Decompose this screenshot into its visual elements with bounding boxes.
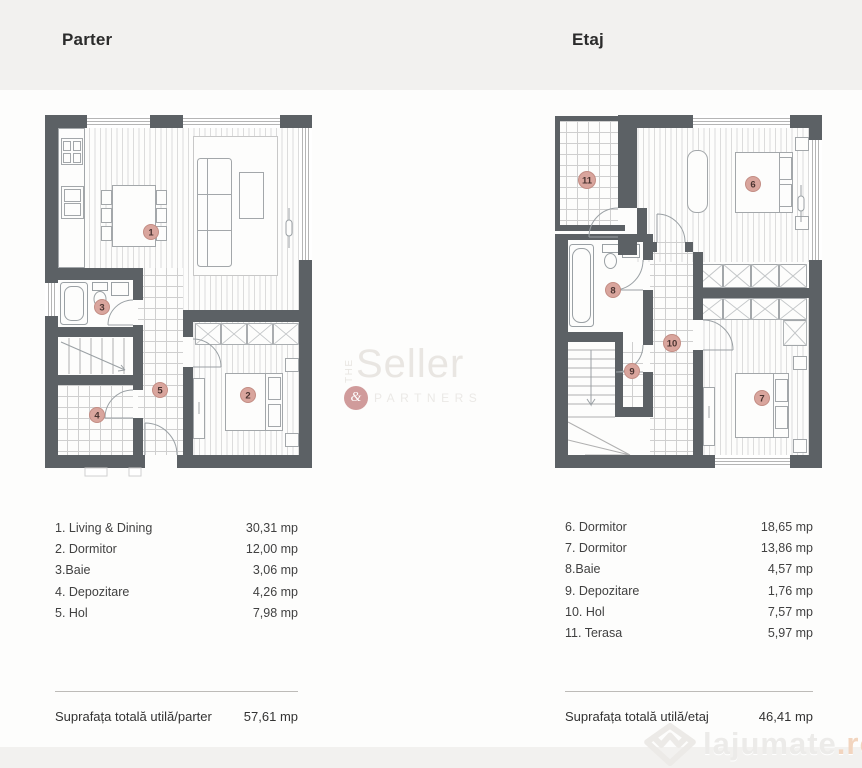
legend-row: 1. Living & Dining 30,31 mp — [55, 522, 298, 535]
legend-row: 4. Depozitare 4,26 mp — [55, 586, 298, 599]
room-area: 7,57 mp — [768, 606, 813, 619]
room-label: 1. Living & Dining — [55, 522, 152, 535]
room-label: 10. Hol — [565, 606, 605, 619]
room-marker: 10 — [664, 335, 681, 352]
room-area: 30,31 mp — [246, 522, 298, 535]
etaj-title: Etaj — [572, 30, 604, 50]
legend-etaj: 6. Dormitor 18,65 mp 7. Dormitor 13,86 m… — [565, 521, 813, 648]
svg-text:9: 9 — [629, 367, 634, 378]
watermark-bottom: & PARTNERS — [344, 386, 519, 410]
room-area: 18,65 mp — [761, 521, 813, 534]
svg-text:6: 6 — [750, 180, 755, 191]
room-area: 5,97 mp — [768, 627, 813, 640]
parter-title: Parter — [62, 30, 112, 50]
room-label: 5. Hol — [55, 607, 88, 620]
room-label: 4. Depozitare — [55, 586, 129, 599]
room-area: 7,98 mp — [253, 607, 298, 620]
brand-tld: .ro — [837, 726, 862, 761]
total-parter: Suprafața totală utilă/parter 57,61 mp — [55, 691, 298, 724]
brand-name: lajumate.ro — [703, 726, 862, 762]
floorplan-page: Parter Etaj — [0, 0, 862, 768]
svg-text:11: 11 — [582, 176, 593, 187]
brand-name-main: lajumate — [703, 726, 837, 761]
floorplan-etaj: 6 7 8 9 10 11 — [555, 115, 822, 468]
kitchen-counter — [59, 129, 85, 268]
room-area: 13,86 mp — [761, 542, 813, 555]
room-label: 9. Depozitare — [565, 585, 639, 598]
room-label: 8.Baie — [565, 563, 600, 576]
room-marker: 11 — [579, 172, 596, 189]
room-marker: 2 — [241, 388, 256, 403]
total-value: 57,61 mp — [244, 709, 298, 724]
room-marker: 8 — [606, 283, 621, 298]
legend-row: 7. Dormitor 13,86 mp — [565, 542, 813, 555]
lajumate-icon — [642, 722, 698, 766]
legend-row: 5. Hol 7,98 mp — [55, 607, 298, 620]
svg-text:10: 10 — [667, 339, 678, 350]
watermark-partners: PARTNERS — [374, 391, 482, 405]
floorplans-drawing: 1 2 3 4 5 — [45, 110, 822, 478]
room-marker: 3 — [95, 300, 110, 315]
legend-row: 10. Hol 7,57 mp — [565, 606, 813, 619]
svg-text:8: 8 — [610, 286, 615, 297]
lajumate-logo: lajumate.ro — [642, 722, 862, 766]
room-area: 4,26 mp — [253, 586, 298, 599]
room-marker: 5 — [153, 383, 168, 398]
sofa-set — [194, 137, 278, 276]
room-marker: 6 — [746, 177, 761, 192]
floorplan-parter: 1 2 3 4 5 — [45, 115, 312, 476]
watermark-top: THE Seller — [344, 346, 519, 383]
top-band — [0, 0, 862, 90]
room-label: 11. Terasa — [565, 627, 622, 640]
total-etaj: Suprafața totală utilă/etaj 46,41 mp — [565, 691, 813, 724]
legend-row: 11. Terasa 5,97 mp — [565, 627, 813, 640]
room-label: 7. Dormitor — [565, 542, 627, 555]
legend-row: 9. Depozitare 1,76 mp — [565, 585, 813, 598]
room-area: 4,57 mp — [768, 563, 813, 576]
stairs — [61, 338, 125, 374]
room-marker: 9 — [625, 364, 640, 379]
room-area: 1,76 mp — [768, 585, 813, 598]
legend-parter: 1. Living & Dining 30,31 mp 2. Dormitor … — [55, 522, 298, 628]
bathroom-fixtures — [61, 283, 129, 325]
watermark-the: THE — [344, 347, 355, 383]
room-marker: 4 — [90, 408, 105, 423]
total-label: Suprafața totală utilă/parter — [55, 709, 212, 724]
legend-row: 2. Dormitor 12,00 mp — [55, 543, 298, 556]
svg-text:1: 1 — [148, 228, 154, 239]
agency-watermark: THE Seller & PARTNERS — [344, 346, 519, 410]
room-label: 2. Dormitor — [55, 543, 117, 556]
room-label: 3.Baie — [55, 564, 90, 577]
room-label: 6. Dormitor — [565, 521, 627, 534]
svg-text:3: 3 — [99, 303, 104, 314]
legend-row: 3.Baie 3,06 mp — [55, 564, 298, 577]
legend-row: 8.Baie 4,57 mp — [565, 563, 813, 576]
svg-text:7: 7 — [759, 394, 764, 405]
watermark-name: Seller — [356, 346, 464, 383]
ampersand-badge: & — [344, 386, 368, 410]
room-area: 3,06 mp — [253, 564, 298, 577]
legend-row: 6. Dormitor 18,65 mp — [565, 521, 813, 534]
room-marker: 7 — [755, 391, 770, 406]
svg-text:2: 2 — [245, 391, 250, 402]
room-marker: 1 — [144, 225, 159, 240]
room-area: 12,00 mp — [246, 543, 298, 556]
svg-text:5: 5 — [157, 386, 163, 397]
svg-text:4: 4 — [94, 411, 100, 422]
